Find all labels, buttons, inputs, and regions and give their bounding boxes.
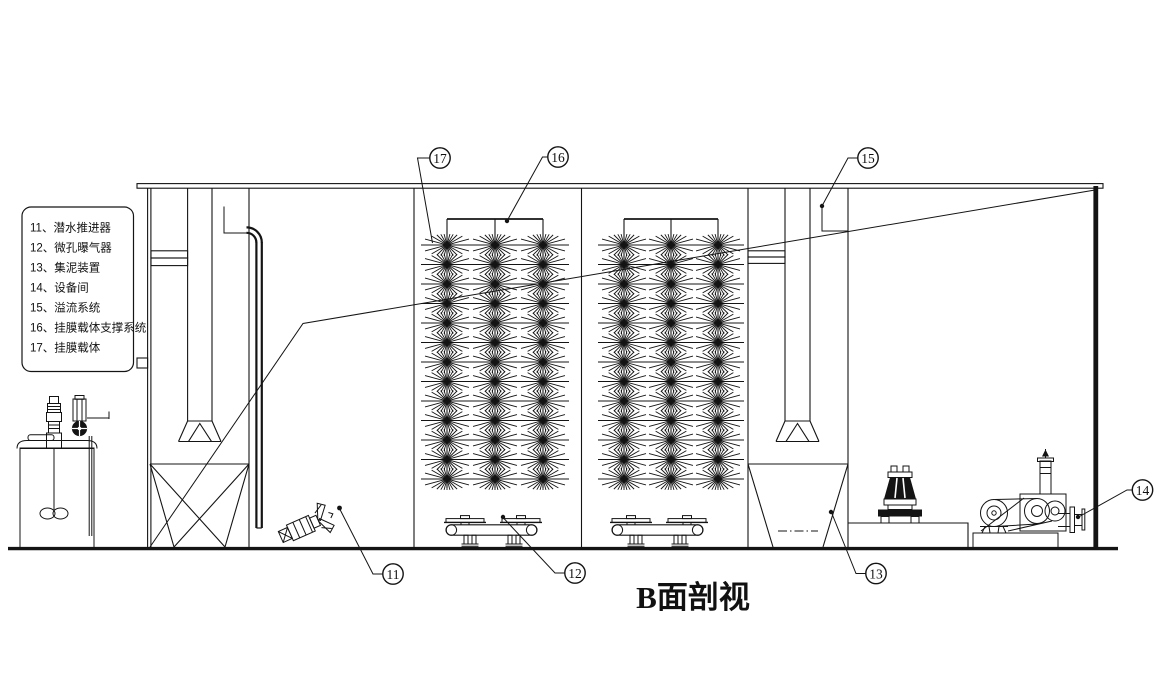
brush-star <box>598 234 650 256</box>
brush-star <box>421 351 473 373</box>
brush-star <box>598 429 650 451</box>
brush-star <box>645 410 697 432</box>
brush-star <box>421 410 473 432</box>
brush-star <box>469 312 521 334</box>
brush-star <box>598 293 650 315</box>
brush-star <box>421 468 473 490</box>
brush-star <box>469 234 521 256</box>
right-wall-sleeve <box>748 251 785 264</box>
brush-star <box>421 234 473 256</box>
engineering-drawing: 11 12 13 14 15 16 17 11、潜水推进器 12、微 <box>0 0 1175 699</box>
brush-star <box>692 410 744 432</box>
left-bellmouth-cone <box>189 424 212 442</box>
leader-16 <box>507 157 548 221</box>
legend-item-17: 17、挂膜载体 <box>30 341 101 355</box>
brush-star <box>421 254 473 276</box>
brush-assembly-2 <box>598 219 744 490</box>
brush-star <box>645 468 697 490</box>
brush-star <box>469 390 521 412</box>
brush-star <box>517 234 569 256</box>
dosing-pump <box>72 396 109 537</box>
right-duct <box>776 188 819 441</box>
legend-item-16: 16、挂膜载体支撑系统 <box>30 321 147 335</box>
brush-star <box>645 332 697 354</box>
legend-item-11: 11、潜水推进器 <box>30 221 111 235</box>
brush-star <box>692 351 744 373</box>
brush-star <box>692 449 744 471</box>
brush-star <box>598 390 650 412</box>
brush-star <box>421 312 473 334</box>
brush-star <box>692 429 744 451</box>
legend-item-15: 15、溢流系统 <box>30 301 101 315</box>
callout-12: 12 <box>565 563 585 583</box>
brush-star <box>517 351 569 373</box>
brush-star <box>469 371 521 393</box>
brush-star <box>645 449 697 471</box>
callout-16: 16 <box>548 147 568 167</box>
submersible-propeller <box>274 499 339 551</box>
drawing-title: B面剖视 <box>636 580 750 615</box>
leader-11 <box>340 509 384 575</box>
callout-12-label: 12 <box>568 566 582 581</box>
brush-star <box>469 410 521 432</box>
brush-star <box>469 254 521 276</box>
brush-star <box>469 293 521 315</box>
brush-star <box>645 234 697 256</box>
brush-star <box>692 293 744 315</box>
brush-star <box>469 449 521 471</box>
callout-15: 15 <box>858 148 878 168</box>
leader-13 <box>832 513 867 574</box>
brush-star <box>645 273 697 295</box>
legend-item-14: 14、设备间 <box>30 281 89 295</box>
right-bellmouth-cone <box>786 424 809 442</box>
aerator-assembly-2 <box>610 516 708 547</box>
brush-star <box>598 449 650 471</box>
biofilm-carrier-assemblies <box>421 219 744 490</box>
brush-star <box>645 312 697 334</box>
manhole <box>28 435 54 441</box>
top-slab <box>137 184 1103 189</box>
callout-14-label: 14 <box>1136 483 1150 498</box>
blower-base <box>973 533 1058 548</box>
brush-star <box>469 351 521 373</box>
callout-17-label: 17 <box>433 151 447 166</box>
brush-star <box>517 429 569 451</box>
brush-star <box>598 351 650 373</box>
callout-15-label: 15 <box>861 151 875 166</box>
brush-star <box>692 332 744 354</box>
callout-11: 11 <box>383 564 403 584</box>
blower-outlet <box>1058 507 1085 533</box>
leader-17 <box>418 158 433 243</box>
brush-star <box>598 468 650 490</box>
callout-16-label: 16 <box>551 150 565 165</box>
brush-star <box>598 371 650 393</box>
brush-star <box>421 429 473 451</box>
leader-15 <box>822 158 858 231</box>
legend-item-13: 13、集泥装置 <box>30 261 100 275</box>
brush-star <box>421 371 473 393</box>
brush-star <box>421 390 473 412</box>
brush-star <box>645 429 697 451</box>
brush-star <box>598 312 650 334</box>
callout-14: 14 <box>1132 480 1152 500</box>
brush-star <box>421 449 473 471</box>
brush-star <box>517 254 569 276</box>
legend-box: 11、潜水推进器 12、微孔曝气器 13、集泥装置 14、设备间 15、溢流系统… <box>22 207 147 372</box>
leader-14 <box>1079 490 1133 517</box>
brush-star <box>517 390 569 412</box>
roots-blower <box>973 449 1085 548</box>
aerator-assembly-1 <box>444 516 542 547</box>
brush-star <box>598 410 650 432</box>
left-wall-sleeve <box>151 251 188 266</box>
mixer-motor <box>47 397 62 434</box>
brush-star <box>598 332 650 354</box>
brush-star <box>692 390 744 412</box>
brush-star <box>598 273 650 295</box>
brush-star <box>421 273 473 295</box>
brush-star <box>469 273 521 295</box>
brush-star <box>645 293 697 315</box>
drawing-canvas: 11 12 13 14 15 16 17 11、潜水推进器 12、微 <box>0 0 1175 699</box>
brush-star <box>517 332 569 354</box>
brush-star <box>469 332 521 354</box>
brush-assembly-1 <box>421 219 569 490</box>
brush-star <box>517 449 569 471</box>
left-hopper <box>150 464 249 547</box>
brush-star <box>469 429 521 451</box>
callout-13: 13 <box>866 563 886 583</box>
tank-structure <box>8 184 1118 549</box>
brush-star <box>692 312 744 334</box>
aerator-assemblies <box>444 516 708 547</box>
sludge-pump <box>874 466 926 523</box>
brush-star <box>517 273 569 295</box>
brush-star <box>692 234 744 256</box>
brush-star <box>692 468 744 490</box>
callout-17: 17 <box>430 148 450 168</box>
brush-star <box>469 468 521 490</box>
equipment-platform <box>848 523 968 548</box>
callout-13-label: 13 <box>869 566 883 581</box>
brush-star <box>645 351 697 373</box>
brush-star <box>645 371 697 393</box>
wall-stub <box>137 358 148 368</box>
brush-star <box>517 468 569 490</box>
silencer-stack <box>1038 449 1054 494</box>
brush-star <box>517 312 569 334</box>
drop-pipe <box>224 207 262 529</box>
brush-star <box>517 293 569 315</box>
brush-star <box>421 332 473 354</box>
brush-star <box>517 371 569 393</box>
brush-star <box>692 273 744 295</box>
right-hopper <box>748 464 848 547</box>
brush-star <box>692 371 744 393</box>
left-duct <box>179 188 222 441</box>
legend-item-12: 12、微孔曝气器 <box>30 241 112 255</box>
callout-11-label: 11 <box>387 567 400 582</box>
brush-star <box>645 390 697 412</box>
right-wall <box>1093 186 1098 547</box>
dosing-tank <box>17 396 109 549</box>
brush-star <box>517 410 569 432</box>
